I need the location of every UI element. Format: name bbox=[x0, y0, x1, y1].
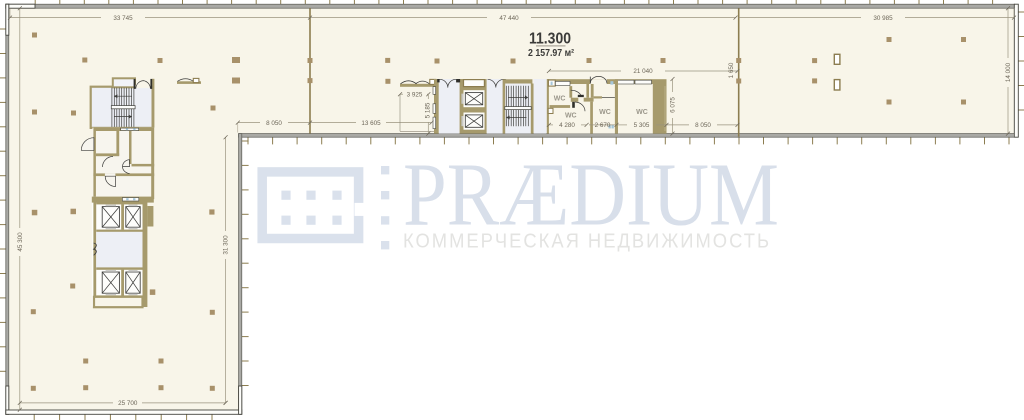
svg-text:11.300: 11.300 bbox=[529, 31, 571, 48]
svg-text:21 040: 21 040 bbox=[633, 68, 653, 75]
svg-text:WC: WC bbox=[565, 113, 577, 120]
svg-text:33 745: 33 745 bbox=[113, 15, 133, 22]
svg-text:47 440: 47 440 bbox=[499, 15, 519, 22]
svg-text:2 670: 2 670 bbox=[595, 122, 611, 129]
svg-text:14 000: 14 000 bbox=[1005, 62, 1012, 82]
svg-text:13 605: 13 605 bbox=[361, 120, 381, 127]
svg-text:5 185: 5 185 bbox=[424, 102, 431, 118]
svg-text:2 157.97 м²: 2 157.97 м² bbox=[528, 48, 575, 59]
svg-text:WC: WC bbox=[636, 109, 648, 116]
svg-text:3 925: 3 925 bbox=[407, 91, 423, 98]
svg-text:WC: WC bbox=[599, 109, 611, 116]
svg-text:КОММЕРЧЕСКАЯ НЕДВИЖИМОСТЬ: КОММЕРЧЕСКАЯ НЕДВИЖИМОСТЬ bbox=[403, 231, 771, 253]
svg-text:8 050: 8 050 bbox=[695, 122, 711, 129]
svg-text:31 300: 31 300 bbox=[223, 235, 230, 255]
svg-text:6 075: 6 075 bbox=[670, 97, 677, 113]
svg-text:WC: WC bbox=[554, 96, 566, 103]
svg-text:25 700: 25 700 bbox=[118, 400, 138, 407]
svg-text:45 300: 45 300 bbox=[17, 232, 24, 252]
svg-text:1 650: 1 650 bbox=[728, 62, 735, 78]
svg-text:30 985: 30 985 bbox=[873, 15, 893, 22]
svg-text:8 050: 8 050 bbox=[266, 120, 282, 127]
svg-text:4 280: 4 280 bbox=[559, 122, 575, 129]
svg-text:5 305: 5 305 bbox=[634, 122, 650, 129]
